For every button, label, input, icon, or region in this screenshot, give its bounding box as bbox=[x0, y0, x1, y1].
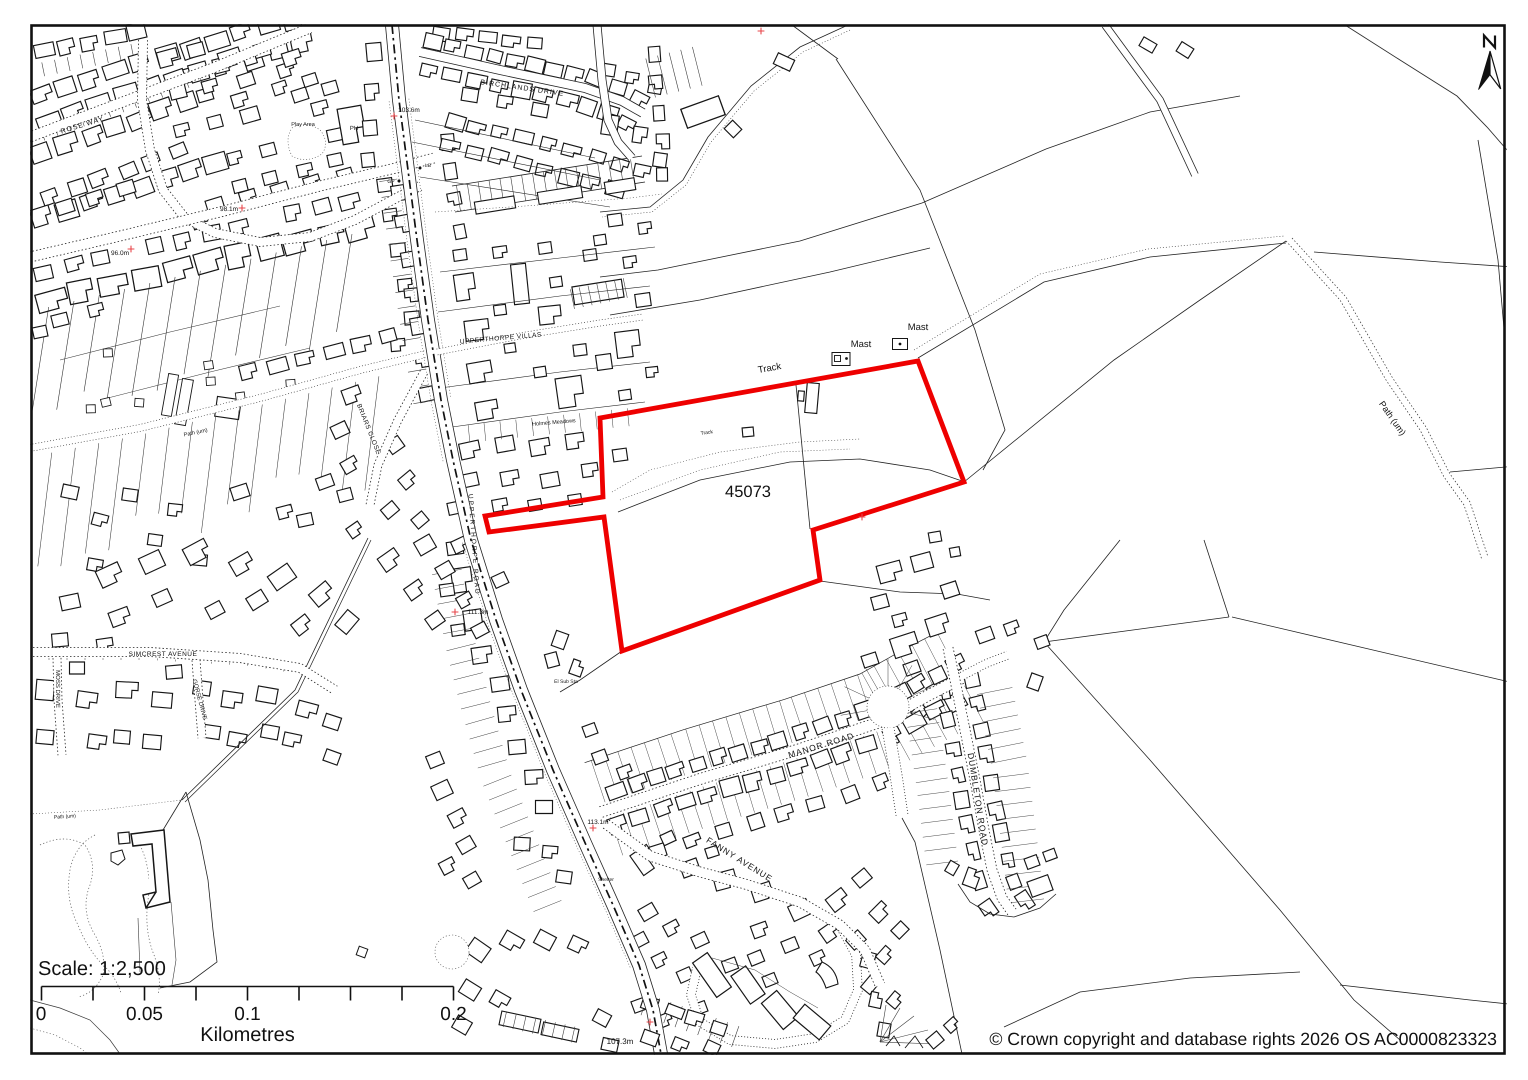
svg-text:103.6m: 103.6m bbox=[398, 107, 420, 114]
svg-text:0.2: 0.2 bbox=[440, 1004, 466, 1025]
svg-text:0: 0 bbox=[36, 1004, 47, 1025]
svg-text:GP: GP bbox=[387, 179, 395, 185]
svg-text:0.1: 0.1 bbox=[234, 1004, 260, 1025]
svg-text:El Sub Sta: El Sub Sta bbox=[554, 679, 578, 685]
svg-text:Mast: Mast bbox=[908, 322, 929, 333]
svg-text:Play Area: Play Area bbox=[291, 122, 315, 128]
svg-text:MOSS DRIVE: MOSS DRIVE bbox=[54, 670, 61, 708]
svg-text:0.05: 0.05 bbox=[126, 1004, 163, 1025]
svg-text:PH: PH bbox=[350, 125, 358, 132]
svg-text:Scale: 1:2,500: Scale: 1:2,500 bbox=[38, 958, 166, 980]
svg-text:Mast: Mast bbox=[851, 339, 872, 350]
svg-text:SIMCREST AVENUE: SIMCREST AVENUE bbox=[129, 651, 198, 658]
svg-text:107.3m: 107.3m bbox=[607, 1037, 634, 1046]
svg-text:111.3m: 111.3m bbox=[468, 609, 489, 616]
svg-text:98.1m: 98.1m bbox=[220, 206, 238, 213]
svg-text:Kilometres: Kilometres bbox=[200, 1024, 294, 1046]
svg-text:96.0m: 96.0m bbox=[111, 250, 129, 257]
svg-text:45073: 45073 bbox=[725, 483, 771, 501]
svg-text:© Crown copyright and database: © Crown copyright and database rights 20… bbox=[989, 1029, 1497, 1049]
svg-text:Shelter: Shelter bbox=[598, 877, 614, 883]
svg-text:113.1m: 113.1m bbox=[587, 819, 608, 826]
svg-text:LB: LB bbox=[425, 163, 432, 169]
